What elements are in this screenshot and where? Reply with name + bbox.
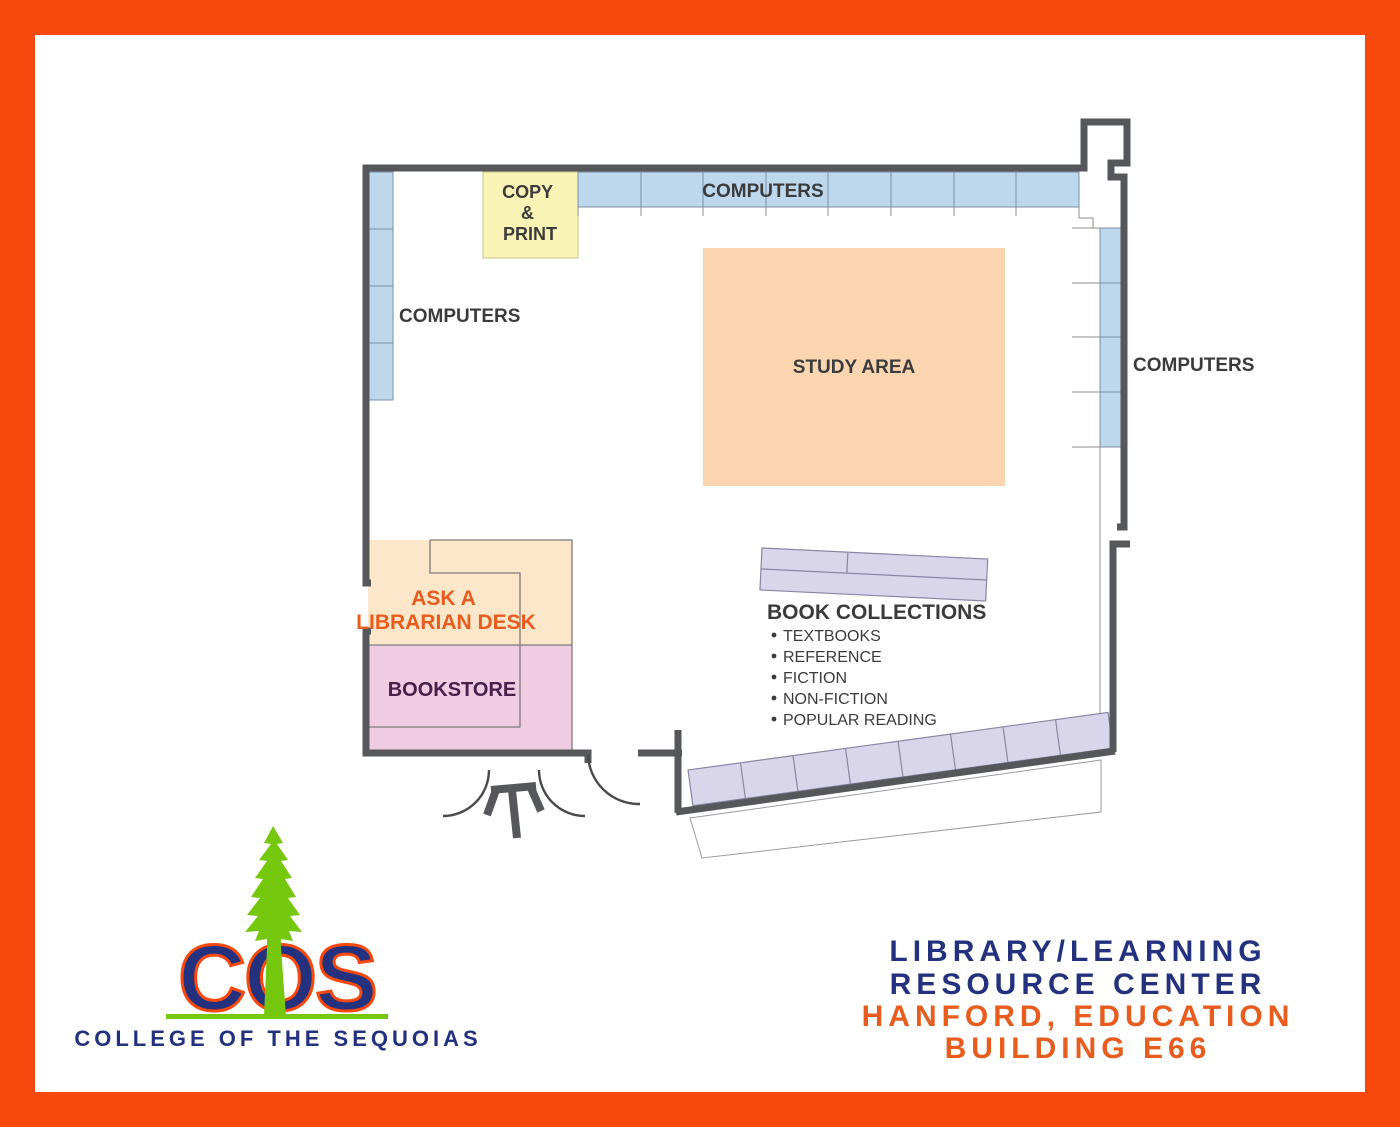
computers-top-label: COMPUTERS <box>702 181 823 202</box>
library-floor-plan-page: COMPUTERS COMPUTERS COMPUTERS STUDY AREA… <box>0 0 1400 1127</box>
study-area-label: STUDY AREA <box>793 357 916 378</box>
caption-line-3: HANFORD, EDUCATION <box>862 1000 1295 1033</box>
book-collections-item: FICTION <box>783 670 847 687</box>
caption-line-2: RESOURCE CENTER <box>890 968 1267 1001</box>
floor-plan-svg: COMPUTERS COMPUTERS COMPUTERS STUDY AREA… <box>0 0 1400 1127</box>
book-collections-item: REFERENCE <box>783 649 882 666</box>
bullet-icon <box>772 633 777 638</box>
book-collections-title: BOOK COLLECTIONS <box>767 601 986 624</box>
book-collections-item: TEXTBOOKS <box>783 628 881 645</box>
bullet-icon <box>772 654 777 659</box>
computers-left-label: COMPUTERS <box>399 306 520 327</box>
service-desk-area <box>368 540 572 753</box>
computer-desks-top <box>578 172 1079 207</box>
computer-desks-left <box>368 172 393 400</box>
bookstore-label: BOOKSTORE <box>388 679 517 701</box>
computers-right-label: COMPUTERS <box>1133 355 1254 376</box>
caption-line-1: LIBRARY/LEARNING <box>889 935 1266 968</box>
caption-line-4: BUILDING E66 <box>945 1032 1212 1065</box>
computer-desks-right <box>1100 228 1121 447</box>
college-name: COLLEGE OF THE SEQUOIAS <box>74 1026 481 1051</box>
bullet-icon <box>772 675 777 680</box>
bullet-icon <box>772 717 777 722</box>
bullet-icon <box>772 696 777 701</box>
logo-underline <box>166 1014 388 1019</box>
book-collections-item: NON-FICTION <box>783 691 888 708</box>
gate-center-leg <box>512 790 517 838</box>
book-collections-item: POPULAR READING <box>783 712 937 729</box>
